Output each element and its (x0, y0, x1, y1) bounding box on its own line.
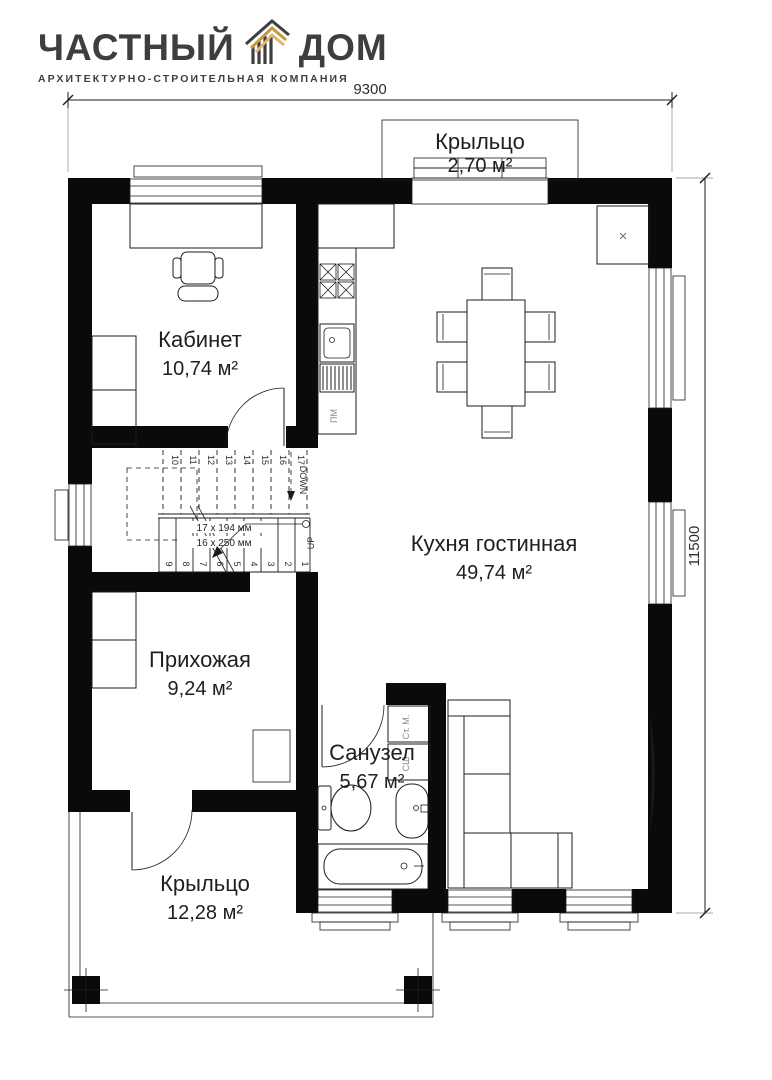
window-living-right-1 (649, 268, 685, 408)
office-door (226, 388, 284, 446)
dimension-height-label: 11500 (686, 526, 703, 567)
svg-text:DOWN: DOWN (298, 466, 308, 495)
dimension-right: 11500 (676, 173, 713, 918)
room-area-porch-bottom: 12,28 м² (167, 902, 243, 924)
room-area-porch-top: 2,70 м² (448, 155, 513, 177)
svg-text:8: 8 (181, 561, 191, 566)
room-label-porch-top: Крыльцо (435, 129, 525, 154)
floor-plan: 9300 11500 (0, 0, 772, 1080)
svg-text:5: 5 (232, 561, 242, 566)
svg-text:17: 17 (296, 455, 306, 465)
svg-text:Ст. М.: Ст. М. (401, 715, 411, 740)
kitchen-sink (320, 324, 354, 362)
stair-tread-note: 16 x 250 мм (197, 538, 252, 549)
bathtub (318, 844, 428, 889)
dishwasher: ПМ (320, 364, 354, 423)
hall-wardrobe-2 (92, 640, 136, 688)
office-chair (173, 252, 223, 301)
porch-bottom: Крыльцо 12,28 м² (64, 812, 440, 1017)
room-office: Кабинет 10,74 м² (92, 204, 284, 446)
window-bath-bottom (312, 890, 398, 930)
desk (130, 204, 262, 248)
stair-riser-note: 17 x 194 мм (197, 523, 252, 534)
svg-text:2: 2 (283, 561, 293, 566)
svg-text:3: 3 (266, 561, 276, 566)
dining-table (437, 268, 555, 438)
svg-text:7: 7 (198, 561, 208, 566)
window-stairs-left (55, 484, 91, 546)
svg-text:10: 10 (170, 455, 180, 465)
window-living-bottom-2 (560, 890, 638, 930)
washer: Ст. М. (388, 706, 430, 742)
hall-wardrobe-1 (92, 592, 136, 640)
svg-text:9: 9 (164, 561, 174, 566)
svg-text:UP: UP (306, 537, 316, 550)
svg-text:4: 4 (249, 561, 259, 566)
room-hallway: Прихожая 9,24 м² (92, 592, 290, 870)
room-area-kitchen-living: 49,74 м² (456, 562, 532, 584)
room-area-hallway: 9,24 м² (168, 678, 233, 700)
staircase: 10 11 12 13 14 15 16 17 1 2 3 4 5 6 7 8 … (127, 450, 316, 572)
corner-sofa (448, 700, 572, 888)
dimension-width-label: 9300 (353, 81, 386, 98)
svg-text:11: 11 (188, 455, 198, 464)
window-living-bottom-1 (442, 890, 518, 930)
room-bathroom: Ст. М. СШ Санузел 5,67 м² (318, 705, 430, 889)
stair-upper-numbers: 10 11 12 13 14 15 16 17 (170, 455, 306, 465)
office-wardrobe-1 (92, 336, 136, 390)
stair-lower-numbers: 1 2 3 4 5 6 7 8 9 (164, 561, 310, 566)
entrance-door (132, 810, 192, 870)
stove (320, 264, 354, 298)
svg-text:6: 6 (215, 561, 225, 566)
porch-column-left (64, 968, 108, 1012)
living-wardrobe: × (597, 206, 649, 264)
svg-text:15: 15 (260, 455, 270, 465)
window-living-right-2 (649, 502, 685, 604)
room-label-bathroom: Санузел (329, 740, 415, 765)
window-office-top (130, 166, 262, 203)
room-label-office: Кабинет (158, 327, 242, 352)
room-label-porch-bottom: Крыльцо (160, 871, 250, 896)
svg-text:12: 12 (206, 455, 216, 465)
dining-chairs (437, 268, 555, 438)
room-area-office: 10,74 м² (162, 358, 238, 380)
room-label-hallway: Прихожая (149, 647, 251, 672)
kitchen-counter-top (318, 204, 394, 248)
dimension-top: 9300 (63, 81, 677, 172)
room-label-kitchen-living: Кухня гостинная (411, 531, 578, 556)
wardrobe-x-mark: × (619, 228, 628, 245)
svg-text:13: 13 (224, 455, 234, 465)
room-area-bathroom: 5,67 м² (340, 771, 405, 793)
svg-text:16: 16 (278, 455, 288, 465)
svg-text:1: 1 (300, 561, 310, 566)
hall-niche (253, 730, 290, 782)
svg-text:14: 14 (242, 455, 252, 465)
svg-text:ПМ: ПМ (329, 409, 339, 423)
